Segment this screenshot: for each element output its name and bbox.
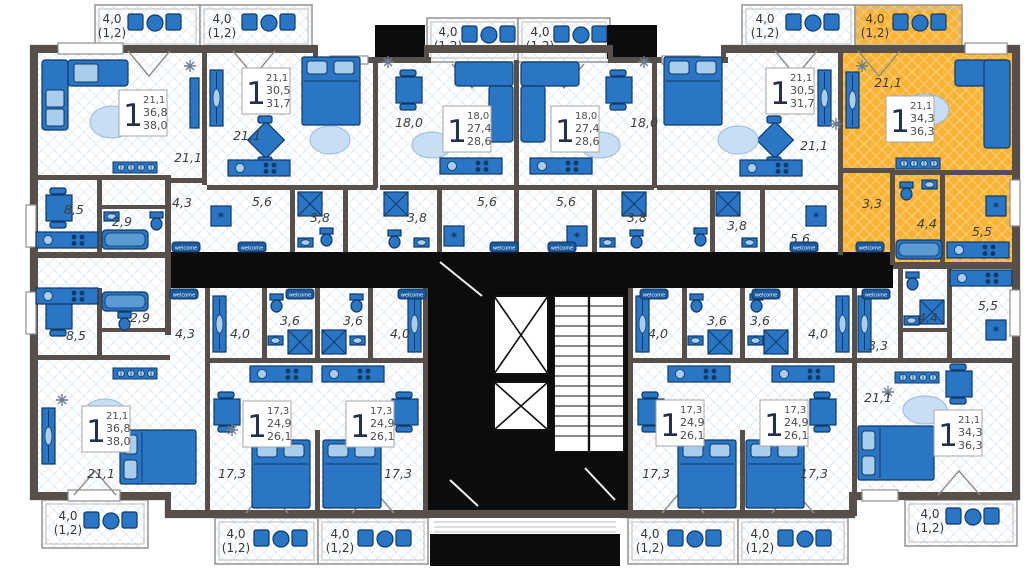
svg-text:(1,2): (1,2): [861, 26, 889, 40]
label-u9-living: 17,3: [384, 466, 412, 481]
label-u10-hall: 4,0: [648, 326, 668, 341]
balcony-coef: (1,2): [98, 26, 126, 40]
balcony-area: 4,0: [102, 12, 121, 26]
welcome-mat: welcome: [490, 242, 518, 252]
svg-text:welcome: welcome: [793, 246, 815, 252]
svg-text:*: *: [993, 324, 1000, 338]
svg-text:36,8: 36,8: [143, 106, 168, 119]
svg-text:4,0: 4,0: [58, 509, 77, 523]
svg-text:27,4: 27,4: [467, 122, 492, 135]
svg-text:*: *: [451, 230, 458, 244]
svg-text:21,1: 21,1: [790, 73, 812, 84]
svg-text:1: 1: [555, 114, 575, 150]
svg-text:1: 1: [660, 408, 680, 444]
svg-text:18,0: 18,0: [467, 111, 489, 122]
infobox-u12[interactable]: 1 21,1 34,3 36,3: [934, 410, 983, 456]
label-u6-hall: 3,3: [862, 196, 882, 211]
label-u7-hall: 4,3: [175, 326, 195, 341]
building-entrance: [430, 534, 620, 566]
svg-text:26,1: 26,1: [680, 429, 705, 442]
label-u6-bath: 4,4: [917, 216, 937, 231]
svg-text:17,3: 17,3: [370, 406, 392, 417]
svg-text:31,7: 31,7: [790, 97, 815, 110]
infobox-u2[interactable]: 1 21,1 30,5 31,7: [242, 68, 291, 114]
svg-text:30,5: 30,5: [790, 84, 815, 97]
welcome-mat: welcome: [752, 289, 780, 299]
infobox-u4[interactable]: 1 18,0 27,4 28,6: [551, 106, 600, 152]
svg-text:1: 1: [247, 409, 267, 445]
svg-text:welcome: welcome: [493, 246, 515, 252]
welcome-mat: welcome: [790, 242, 818, 252]
balcony-u5: 4,0 (1,2): [742, 5, 855, 48]
label-u8-bath: 3,6: [280, 313, 300, 328]
label-u3-hall: 5,6: [477, 194, 497, 209]
label-u12-living: 21,1: [864, 390, 892, 405]
svg-text:4,0: 4,0: [920, 507, 939, 521]
svg-text:1: 1: [770, 76, 790, 112]
welcome-mat: welcome: [862, 289, 890, 299]
svg-text:30,5: 30,5: [266, 84, 291, 97]
svg-text:1: 1: [86, 414, 106, 450]
balcony-u11: 4,0 (1,2): [738, 518, 848, 564]
svg-text:17,3: 17,3: [680, 405, 702, 416]
balcony-u12: 4,0 (1,2): [905, 500, 1017, 546]
svg-text:1: 1: [890, 104, 910, 140]
welcome-mat: welcome: [398, 289, 426, 299]
svg-text:(1,2): (1,2): [751, 26, 779, 40]
svg-text:welcome: welcome: [643, 293, 665, 299]
label-u11-hall: 4,0: [808, 326, 828, 341]
balcony-u10: 4,0 (1,2): [628, 518, 738, 564]
label-u3-living: 18,0: [395, 115, 423, 130]
svg-text:4,0: 4,0: [755, 12, 774, 26]
balcony-u4: 4,0 (1,2): [518, 18, 610, 62]
svg-text:1: 1: [447, 114, 467, 150]
label-u12-bath: 4,4: [918, 310, 938, 325]
svg-text:36,3: 36,3: [958, 439, 983, 452]
svg-text:4,0: 4,0: [750, 527, 769, 541]
svg-text:31,7: 31,7: [266, 97, 291, 110]
welcome-mat: welcome: [856, 242, 884, 252]
shaft-block-left: [375, 25, 425, 59]
svg-text:4,0: 4,0: [212, 12, 231, 26]
svg-text:4,0: 4,0: [438, 25, 457, 39]
label-u2-living: 21,1: [233, 128, 261, 143]
svg-text:21,1: 21,1: [910, 101, 932, 112]
label-u12-hall: 3,3: [868, 338, 888, 353]
svg-text:welcome: welcome: [175, 246, 197, 252]
svg-text:(1,2): (1,2): [636, 541, 664, 555]
label-u8-living: 17,3: [218, 466, 246, 481]
elevator-core: [494, 296, 548, 430]
staircase: [554, 296, 624, 452]
svg-text:24,9: 24,9: [680, 416, 705, 429]
infobox-u5[interactable]: 1 21,1 30,5 31,7: [766, 68, 815, 114]
label-u4-hall: 5,6: [556, 194, 576, 209]
label-u8-hall: 4,0: [230, 326, 250, 341]
svg-text:(1,2): (1,2): [54, 523, 82, 537]
label-u7-kitchen: 8,5: [66, 328, 86, 343]
welcome-mat: welcome: [172, 242, 200, 252]
svg-text:1: 1: [123, 98, 143, 134]
svg-text:27,4: 27,4: [575, 122, 600, 135]
svg-text:welcome: welcome: [865, 293, 887, 299]
label-u11-living: 17,3: [800, 466, 828, 481]
svg-text:36,8: 36,8: [106, 422, 131, 435]
washer-symbol: *: [218, 210, 225, 224]
balcony-u9: 4,0 (1,2): [318, 518, 428, 564]
svg-text:34,3: 34,3: [910, 112, 935, 125]
svg-text:1: 1: [246, 76, 266, 112]
svg-text:36,3: 36,3: [910, 125, 935, 138]
infobox-u3[interactable]: 1 18,0 27,4 28,6: [443, 106, 492, 152]
svg-text:21,1: 21,1: [266, 73, 288, 84]
svg-text:24,9: 24,9: [784, 416, 809, 429]
floorplan-page: 4,0 (1,2) 4,0 (1,2) 4,0 (1,2) 4,0 (1,2) …: [0, 0, 1024, 568]
svg-text:17,3: 17,3: [784, 405, 806, 416]
svg-text:28,6: 28,6: [575, 135, 600, 148]
balcony-u8: 4,0 (1,2): [215, 518, 318, 564]
label-u7-bath: 2,9: [130, 310, 150, 325]
label-u3-bath: 3,8: [407, 210, 427, 225]
infobox-u8[interactable]: 1 17,3 24,9 26,1: [243, 401, 292, 447]
balcony-u7: 4,0 (1,2): [42, 500, 148, 548]
svg-text:34,3: 34,3: [958, 426, 983, 439]
balcony-u3: 4,0 (1,2): [427, 18, 518, 62]
welcome-mat: welcome: [170, 289, 198, 299]
svg-text:1: 1: [938, 418, 958, 454]
label-u5-living: 21,1: [800, 138, 828, 153]
infobox-u6-highlighted[interactable]: 1 21,1 34,3 36,3: [886, 96, 935, 142]
balcony-u1: 4,0 (1,2): [95, 5, 200, 48]
shaft-block-right: [607, 25, 657, 59]
label-u12-kitchen: 5,5: [978, 298, 998, 313]
svg-text:welcome: welcome: [173, 293, 195, 299]
svg-text:38,0: 38,0: [143, 119, 168, 132]
label-u11-bath: 3,6: [750, 313, 770, 328]
svg-text:1: 1: [764, 408, 784, 444]
svg-text:*: *: [813, 210, 820, 224]
svg-text:4,0: 4,0: [226, 527, 245, 541]
label-u4-living: 18,0: [630, 115, 658, 130]
svg-text:26,1: 26,1: [784, 429, 809, 442]
floorplan-svg: 4,0 (1,2) 4,0 (1,2) 4,0 (1,2) 4,0 (1,2) …: [0, 0, 1024, 568]
svg-text:4,0: 4,0: [865, 12, 884, 26]
infobox-u1[interactable]: 1 21,1 36,8 38,0: [119, 90, 168, 136]
svg-text:4,0: 4,0: [330, 527, 349, 541]
label-u1-hall: 4,3: [172, 195, 192, 210]
svg-text:38,0: 38,0: [106, 435, 131, 448]
svg-text:28,6: 28,6: [467, 135, 492, 148]
infobox-u9[interactable]: 1 17,3 24,9 26,1: [346, 401, 395, 447]
svg-text:welcome: welcome: [401, 293, 423, 299]
svg-text:21,1: 21,1: [106, 411, 128, 422]
welcome-mat: welcome: [238, 242, 266, 252]
svg-text:18,0: 18,0: [575, 111, 597, 122]
label-u10-bath: 3,6: [707, 313, 727, 328]
infobox-u10[interactable]: 1 17,3 24,9 26,1: [656, 400, 705, 446]
svg-text:welcome: welcome: [755, 293, 777, 299]
svg-text:(1,2): (1,2): [326, 541, 354, 555]
infobox-u7[interactable]: 1 21,1 36,8 38,0: [82, 406, 131, 452]
svg-text:welcome: welcome: [551, 246, 573, 252]
label-u1-living: 21,1: [174, 150, 202, 165]
svg-text:(1,2): (1,2): [746, 541, 774, 555]
svg-text:*: *: [993, 200, 1000, 214]
balcony-u2: 4,0 (1,2): [200, 5, 312, 48]
label-u1-kitchen: 8,5: [64, 202, 84, 217]
svg-text:17,3: 17,3: [267, 406, 289, 417]
svg-text:21,1: 21,1: [143, 95, 165, 106]
balcony-u6-highlighted: 4,0 (1,2): [855, 5, 962, 48]
svg-text:(1,2): (1,2): [916, 521, 944, 535]
svg-text:26,1: 26,1: [370, 430, 395, 443]
label-u10-living: 17,3: [642, 466, 670, 481]
label-u2-bath: 3,8: [310, 210, 330, 225]
label-u9-bath: 3,6: [343, 313, 363, 328]
svg-text:24,9: 24,9: [370, 417, 395, 430]
svg-text:4,0: 4,0: [640, 527, 659, 541]
welcome-mat: welcome: [286, 289, 314, 299]
svg-text:1: 1: [350, 409, 370, 445]
infobox-u11[interactable]: 1 17,3 24,9 26,1: [760, 400, 809, 446]
welcome-mat: welcome: [640, 289, 668, 299]
label-u6-kitchen: 5,5: [972, 224, 992, 239]
label-u5-bath: 3,8: [727, 218, 747, 233]
svg-text:4,0: 4,0: [530, 25, 549, 39]
svg-text:welcome: welcome: [289, 293, 311, 299]
label-u7-living: 21,1: [87, 466, 115, 481]
welcome-mat: welcome: [548, 242, 576, 252]
svg-text:welcome: welcome: [241, 246, 263, 252]
label-u6-living: 21,1: [874, 75, 902, 90]
svg-text:(1,2): (1,2): [208, 26, 236, 40]
svg-text:24,9: 24,9: [267, 417, 292, 430]
label-u2-hall: 5,6: [252, 194, 272, 209]
label-u9-hall: 4,0: [390, 326, 410, 341]
label-u1-bath: 2,9: [112, 214, 132, 229]
svg-text:26,1: 26,1: [267, 430, 292, 443]
label-u4-bath: 3,8: [627, 210, 647, 225]
svg-text:21,1: 21,1: [958, 415, 980, 426]
svg-text:welcome: welcome: [859, 246, 881, 252]
svg-text:(1,2): (1,2): [222, 541, 250, 555]
